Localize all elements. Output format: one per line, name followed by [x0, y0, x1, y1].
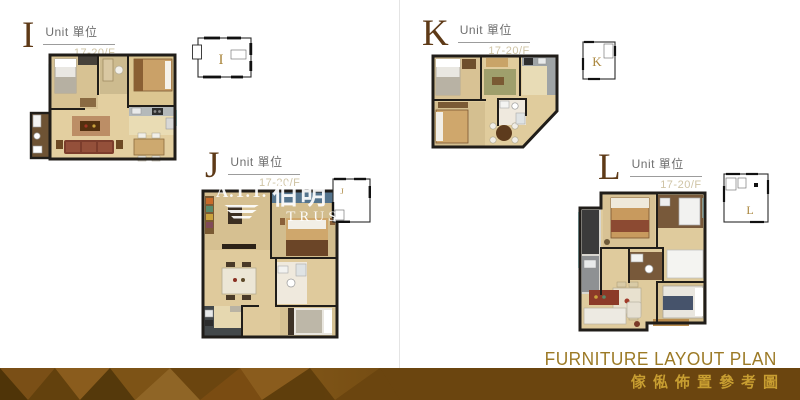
watermark-bar [224, 205, 260, 208]
watermark-bar [227, 210, 257, 213]
unit-k-unit-text: Unit 單位 [458, 21, 530, 43]
unit-k-label: K Unit 單位 17-20/F [422, 18, 530, 57]
unit-l-keyplan-letter: L [746, 203, 753, 217]
watermark: A.T.T. 伯明 TRUS [216, 182, 341, 225]
unit-l-unit-text: Unit 單位 [630, 155, 702, 177]
unit-l-keyplan: L [720, 170, 772, 228]
watermark-trust-text: TRUS [286, 210, 340, 225]
watermark-bar [231, 216, 253, 219]
unit-i-keyplan: I [191, 33, 257, 81]
unit-k-letter: K [422, 18, 449, 49]
watermark-cjk-text: 伯明 [272, 182, 340, 208]
unit-k-floorplan [430, 53, 560, 150]
brochure-page: I Unit 單位 17-20/F [0, 0, 800, 400]
furniture-layout-plan-title-chinese: 傢俬佈置參考圖 [631, 371, 785, 392]
unit-i-unit-text: Unit 單位 [43, 23, 115, 45]
watermark-att-text: A.T.T. [216, 182, 267, 202]
unit-l-label: L Unit 單位 17-20/F [598, 152, 702, 191]
unit-l-letter: L [598, 152, 621, 183]
furniture-layout-plan-title: FURNITURE LAYOUT PLAN [545, 349, 777, 370]
unit-i-keyplan-letter: I [219, 52, 224, 68]
unit-i-letter: I [22, 20, 34, 51]
unit-i-floorplan [28, 52, 178, 162]
unit-l-floorplan [577, 190, 708, 333]
page-fold-divider [399, 0, 400, 368]
footer-polygon-texture [0, 368, 470, 400]
unit-j-keyplan-letter: J [340, 187, 343, 196]
unit-k-keyplan: K [580, 38, 618, 83]
unit-k-keyplan-letter: K [592, 54, 602, 69]
unit-j-letter: J [205, 150, 219, 181]
unit-j-unit-text: Unit 單位 [228, 153, 300, 175]
